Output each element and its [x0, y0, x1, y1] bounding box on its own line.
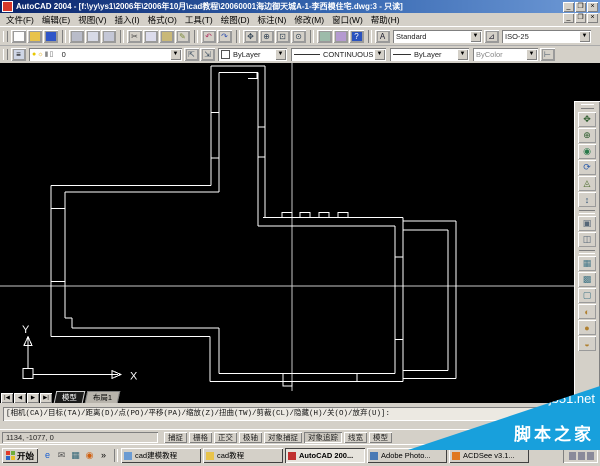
toolbar-separator [62, 30, 66, 43]
task-cad-modeling-folder[interactable]: cad建模教程 [121, 448, 201, 463]
camera-icon[interactable]: ▣ [578, 216, 596, 231]
floor-plan-svg: Y X [0, 63, 574, 391]
toolbar-separator [120, 30, 124, 43]
floor-plan [51, 66, 456, 386]
layout-tab-strip: |◀◀▶▶| 模型布局1 [0, 391, 574, 403]
layer-plot-icon[interactable]: ▯ [50, 50, 54, 59]
start-button[interactable]: 开始 [2, 448, 38, 463]
task-icon [370, 452, 378, 460]
color-value: ByLayer [233, 50, 261, 59]
taskbar-separator [114, 449, 118, 462]
ie-icon[interactable]: e [41, 449, 54, 462]
toolbar-separator [368, 30, 372, 43]
copy-icon[interactable] [143, 30, 158, 43]
paste-icon[interactable] [159, 30, 174, 43]
child-restore-button[interactable]: ❐ [575, 13, 586, 23]
ucs-icon [23, 337, 121, 379]
toggle-otrack[interactable]: 对象追踪 [304, 432, 342, 443]
task-autocad[interactable]: AutoCAD 200... [285, 448, 365, 463]
chevron-down-icon[interactable]: ▼ [470, 31, 481, 42]
designcenter-icon[interactable] [333, 30, 348, 43]
quick-launch-overflow[interactable]: » [97, 449, 110, 462]
menu-edit[interactable]: 编辑(E) [38, 14, 74, 26]
toggle-osnap[interactable]: 对象捕捉 [264, 432, 302, 443]
title-bar: AutoCAD 2004 - [f:\yy\ys1\2006年\2006年10月… [0, 0, 600, 13]
save-icon[interactable] [43, 30, 58, 43]
window-title: AutoCAD 2004 - [f:\yy\ys1\2006年\2006年10月… [16, 1, 562, 12]
layer-combo[interactable]: ●☼▮▯■ 0 ▼ [29, 48, 182, 61]
tab-layout1[interactable]: 布局1 [85, 391, 121, 403]
open-folder-icon[interactable] [27, 30, 42, 43]
task-icon [124, 452, 132, 460]
lineweight-value: ByLayer [414, 50, 442, 59]
plot-preview-icon[interactable] [85, 30, 100, 43]
wireframe-3d-icon[interactable]: ▩ [578, 272, 596, 287]
zoom-previous-icon[interactable]: ⊙ [291, 30, 306, 43]
standard-toolbar: ✂✎↶↷✥⊕⊡⊙? A Standard ▼ ⊿ ISO-25 ▼ [0, 27, 600, 45]
properties-icon[interactable] [317, 30, 332, 43]
menu-help[interactable]: 帮助(H) [367, 14, 404, 26]
dim-style-combo[interactable]: ISO-25 ▼ [502, 30, 591, 43]
tab-model[interactable]: 模型 [54, 391, 86, 403]
toolbar-separator [310, 30, 314, 43]
task-cad-folder[interactable]: cad教程 [203, 448, 283, 463]
new-file-icon[interactable] [11, 30, 26, 43]
system-tray [563, 448, 598, 463]
hidden-shade-icon[interactable]: ▢ [578, 288, 596, 303]
lineweight-combo[interactable]: ByLayer ▼ [390, 48, 469, 61]
layer-color-swatch[interactable]: ■ [54, 50, 58, 59]
toolbar-separator [579, 250, 595, 254]
menu-dimension[interactable]: 标注(N) [254, 14, 291, 26]
clipping-planes-icon[interactable]: ◫ [578, 232, 596, 247]
cut-icon[interactable]: ✂ [127, 30, 142, 43]
child-minimize-button[interactable]: _ [563, 13, 574, 23]
tray-icon[interactable] [587, 452, 594, 460]
close-button[interactable]: × [587, 2, 598, 12]
mdi-child-controls: _ ❐ × [562, 13, 598, 23]
chevron-down-icon: ▼ [526, 49, 537, 60]
gouraud-shaded-icon[interactable]: ● [578, 320, 596, 335]
text-style-value: Standard [396, 32, 426, 41]
outlook-icon[interactable]: ✉ [55, 449, 68, 462]
tray-icon[interactable] [569, 452, 576, 460]
minimize-button[interactable]: _ [563, 2, 574, 12]
linetype-value: CONTINUOUS [323, 50, 373, 59]
orbit-continuous-icon[interactable]: ⟳ [578, 160, 596, 175]
ucs-x-label: X [130, 370, 137, 382]
autocad-window: { "titlebar": { "title": "AutoCAD 2004 -… [0, 0, 600, 450]
chevron-down-icon[interactable]: ▼ [579, 31, 590, 42]
media-player-icon[interactable]: ◉ [83, 449, 96, 462]
child-close-button[interactable]: × [587, 13, 598, 23]
chevron-down-icon[interactable]: ▼ [374, 49, 385, 60]
task-acdsee[interactable]: ACDSee v3.1... [449, 448, 529, 463]
menu-insert[interactable]: 插入(I) [111, 14, 144, 26]
publish-icon[interactable] [101, 30, 116, 43]
menu-file[interactable]: 文件(F) [2, 14, 38, 26]
restore-button[interactable]: ❐ [575, 2, 586, 12]
layer-on-bulb-icon[interactable]: ● [32, 50, 36, 59]
windows-logo-icon [6, 451, 15, 460]
text-style-manager-button[interactable]: A [375, 30, 390, 43]
chevron-down-icon[interactable]: ▼ [275, 49, 286, 60]
zoom-realtime-icon[interactable]: ⊕ [259, 30, 274, 43]
show-desktop-icon[interactable]: ▦ [69, 449, 82, 462]
orbit-zoom-icon[interactable]: ⊕ [578, 128, 596, 143]
plotstyle-combo: ByColor ▼ [473, 48, 538, 61]
tab-next-button[interactable]: ▶ [27, 393, 39, 403]
watermark-site-name: 脚本之家 [514, 420, 594, 445]
lineweight-preview [393, 54, 411, 55]
color-swatch [221, 50, 230, 59]
layer-properties-manager-button[interactable]: ≡ [11, 48, 26, 61]
chevron-down-icon[interactable]: ▼ [170, 49, 181, 60]
text-style-combo[interactable]: Standard ▼ [393, 30, 482, 43]
pan-icon[interactable]: ✥ [243, 30, 258, 43]
toggle-grid[interactable]: 栅格 [189, 432, 212, 443]
toolbar-separator [579, 210, 595, 214]
tab-prev-button[interactable]: ◀ [14, 393, 26, 403]
toggle-ortho[interactable]: 正交 [214, 432, 237, 443]
toggle-model-space[interactable]: 模型 [369, 432, 392, 443]
menu-view[interactable]: 视图(V) [74, 14, 110, 26]
tab-last-button[interactable]: ▶| [40, 393, 52, 403]
zoom-window-icon[interactable]: ⊡ [275, 30, 290, 43]
adjust-distance-icon[interactable]: ↕ [578, 192, 596, 207]
layer-previous-button[interactable]: ⇲ [200, 48, 215, 61]
menu-modify[interactable]: 修改(M) [290, 14, 328, 26]
linetype-preview [294, 54, 320, 55]
orbit-swivel-icon[interactable]: ◬ [578, 176, 596, 191]
chevron-down-icon[interactable]: ▼ [457, 49, 468, 60]
drawing-area-column: Y X |◀◀▶▶| 模型布局1 [0, 63, 574, 403]
plotstyle-value: ByColor [476, 50, 503, 59]
tab-first-button[interactable]: |◀ [1, 393, 13, 403]
plot-icon[interactable] [69, 30, 84, 43]
menu-draw[interactable]: 绘图(D) [217, 14, 254, 26]
drawing-canvas[interactable]: Y X [0, 63, 574, 391]
match-properties-icon[interactable]: ✎ [175, 30, 190, 43]
menu-window[interactable]: 窗口(W) [328, 14, 367, 26]
task-icon [206, 452, 214, 460]
toolbar-grip[interactable] [3, 49, 8, 60]
dim-style-manager-button[interactable]: ⊿ [484, 30, 499, 43]
redo-icon[interactable]: ↷ [217, 30, 232, 43]
shaded-edges-icon[interactable]: ◒ [578, 336, 596, 351]
undo-icon[interactable]: ↶ [201, 30, 216, 43]
task-photoshop[interactable]: Adobe Photo... [367, 448, 447, 463]
crosshair-cursor [0, 63, 574, 391]
orbit-shade-toolbar: ✥⊕◉⟳◬↕▣◫▦▩▢◐●◒ [574, 101, 600, 403]
orbit-3d-icon[interactable]: ◉ [578, 144, 596, 159]
coordinate-display[interactable]: 1134, -1077, 0 [2, 432, 158, 443]
toggle-snap[interactable]: 捕捉 [164, 432, 187, 443]
task-icon [452, 452, 460, 460]
flat-shaded-icon[interactable]: ◐ [578, 304, 596, 319]
right-dock: ✥⊕◉⟳◬↕▣◫▦▩▢◐●◒ [574, 63, 600, 403]
dim-style-value: ISO-25 [505, 32, 529, 41]
make-layer-current-button[interactable]: ⇱ [184, 48, 199, 61]
task-icon [288, 452, 296, 460]
start-label: 开始 [17, 450, 34, 462]
current-layer-name: 0 [62, 50, 66, 59]
autocad-app-icon [2, 1, 13, 12]
main-area: Y X |◀◀▶▶| 模型布局1 ✥⊕◉⟳◬↕▣◫▦▩▢◐●◒ [0, 63, 600, 403]
help-icon[interactable]: ? [349, 30, 364, 43]
layer-freeze-sun-icon[interactable]: ☼ [37, 50, 43, 59]
tray-icon[interactable] [578, 452, 585, 460]
layer-lock-icon[interactable]: ▮ [45, 50, 49, 59]
ucs-y-label: Y [22, 324, 29, 336]
properties-toolbar: ≡ ●☼▮▯■ 0 ▼ ⇱ ⇲ ByLayer ▼ CONTINUOUS ▼ B… [0, 45, 600, 63]
toolbar-separator [194, 30, 198, 43]
menu-format[interactable]: 格式(O) [144, 14, 181, 26]
wireframe-2d-icon[interactable]: ▦ [578, 256, 596, 271]
toolbar-separator [236, 30, 240, 43]
toolbar-grip[interactable] [3, 31, 8, 42]
menu-tools[interactable]: 工具(T) [181, 14, 217, 26]
menu-bar: 文件(F)编辑(E)视图(V)插入(I)格式(O)工具(T)绘图(D)标注(N)… [0, 13, 600, 27]
toggle-lineweight[interactable]: 线宽 [344, 432, 367, 443]
toolbar-end-button[interactable]: ⊢ [540, 48, 555, 61]
toolbar-grip[interactable] [581, 104, 594, 109]
linetype-combo[interactable]: CONTINUOUS ▼ [291, 48, 386, 61]
toggle-polar[interactable]: 极轴 [239, 432, 262, 443]
orbit-pan-icon[interactable]: ✥ [578, 112, 596, 127]
color-combo[interactable]: ByLayer ▼ [218, 48, 287, 61]
